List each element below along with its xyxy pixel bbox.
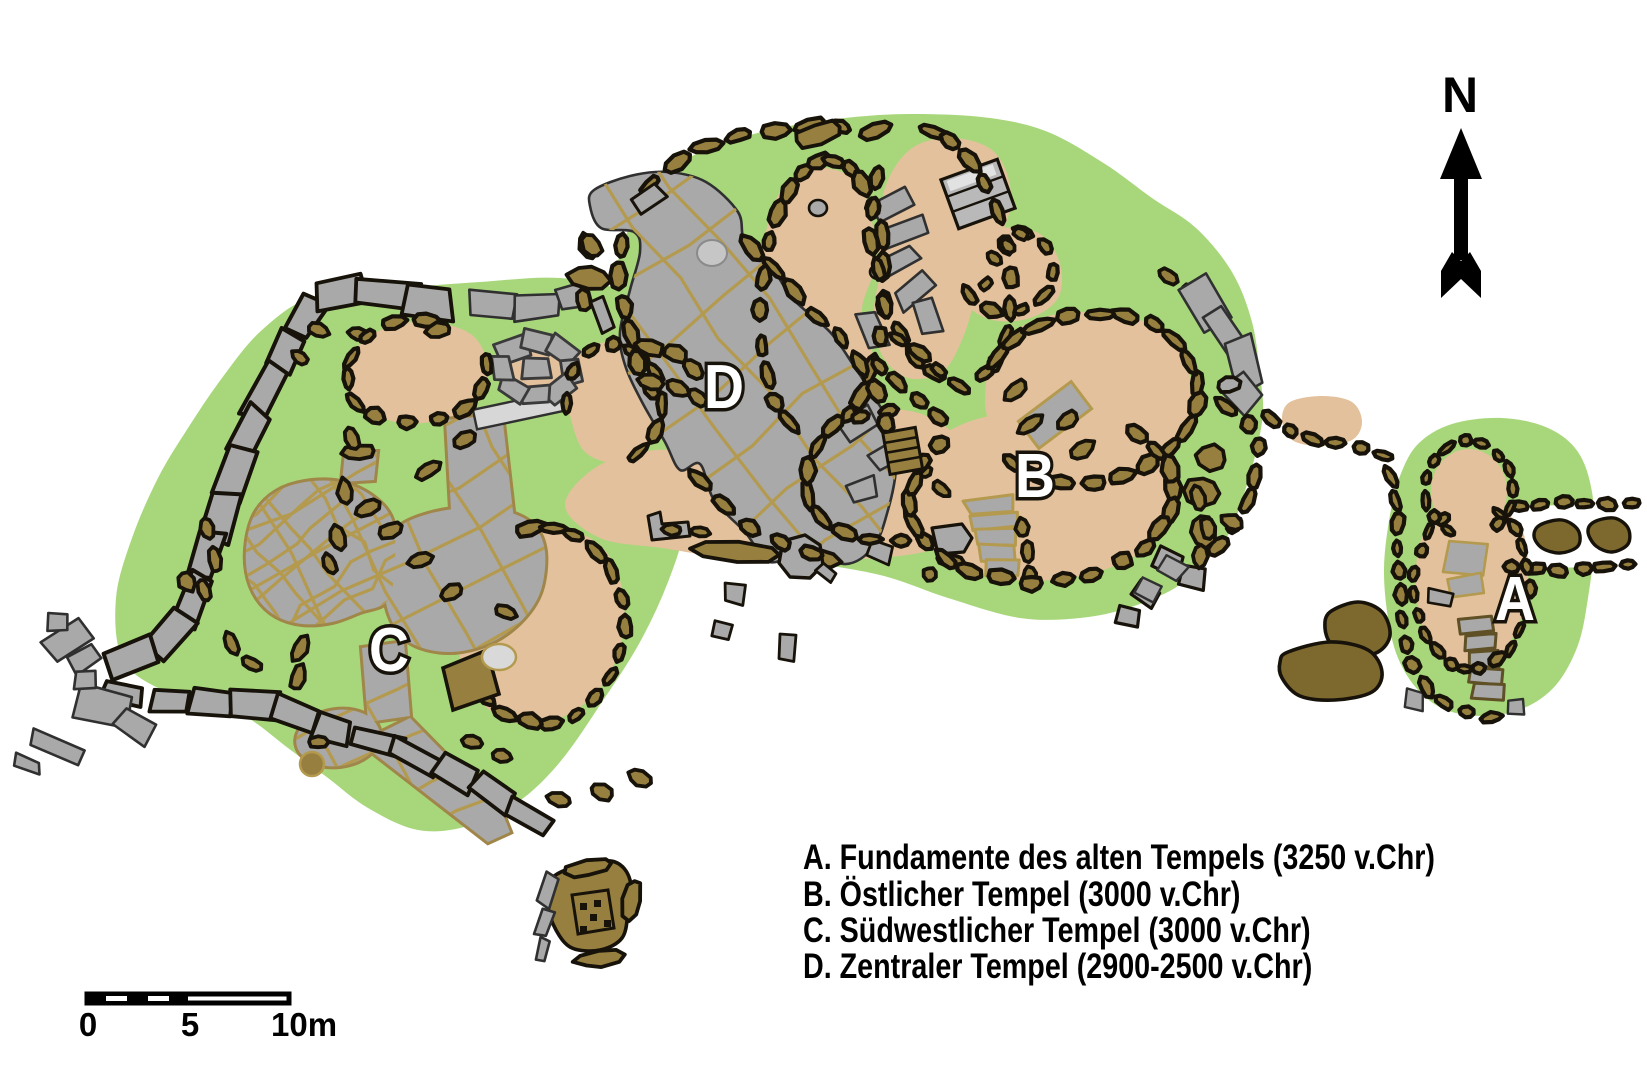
svg-text:N: N bbox=[1442, 67, 1478, 123]
svg-text:B: B bbox=[1015, 442, 1055, 511]
svg-text:10m: 10m bbox=[271, 1006, 337, 1043]
svg-text:B. Östlicher Tempel (3000 v.Ch: B. Östlicher Tempel (3000 v.Chr) bbox=[803, 874, 1240, 913]
svg-text:A: A bbox=[1495, 565, 1535, 634]
svg-text:0: 0 bbox=[79, 1006, 97, 1043]
svg-text:D. Zentraler Tempel (2900-2500: D. Zentraler Tempel (2900-2500 v.Chr) bbox=[803, 946, 1312, 985]
svg-text:A. Fundamente des alten Tempel: A. Fundamente des alten Tempels (3250 v.… bbox=[803, 837, 1435, 876]
svg-text:C. Südwestlicher Tempel (3000: C. Südwestlicher Tempel (3000 v.Chr) bbox=[803, 910, 1311, 949]
svg-text:5: 5 bbox=[181, 1006, 199, 1043]
svg-text:C: C bbox=[369, 616, 409, 685]
svg-text:D: D bbox=[704, 353, 744, 422]
